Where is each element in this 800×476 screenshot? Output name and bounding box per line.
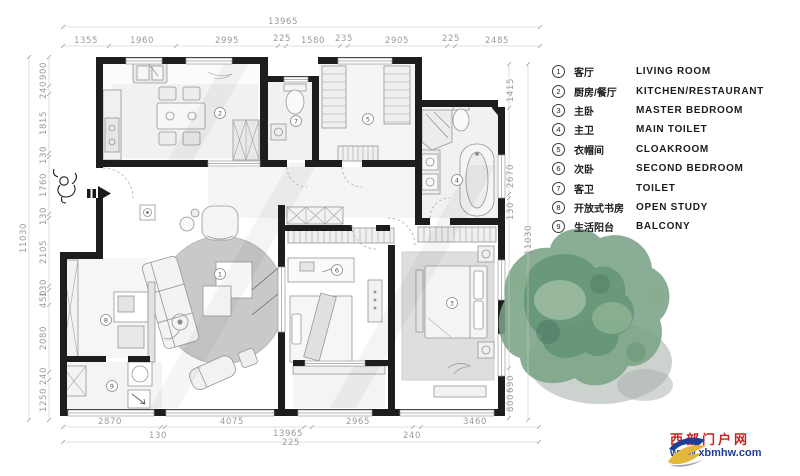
legend-num: 9 [552, 220, 565, 233]
entry-arrow-icon [87, 186, 111, 201]
legend-num: 1 [552, 65, 565, 78]
laundry-sink [128, 390, 150, 408]
legend-num: 6 [552, 162, 565, 175]
svg-text:130: 130 [39, 207, 49, 225]
room-label-main-toilet: 4 [452, 175, 463, 186]
desk-lamp [300, 262, 314, 271]
svg-text:2965: 2965 [346, 417, 370, 427]
dim-right-overall: 11030 [524, 225, 534, 255]
dim-left-overall: 11030 [19, 223, 29, 253]
svg-text:2: 2 [218, 110, 222, 118]
svg-text:240: 240 [39, 367, 49, 385]
svg-text:2105: 2105 [39, 240, 49, 264]
half-wall [148, 282, 155, 362]
svg-text:240: 240 [403, 431, 421, 441]
svg-text:235: 235 [335, 34, 353, 44]
legend-zh: 开放式书房 [574, 200, 636, 215]
svg-text:1250: 1250 [39, 388, 49, 412]
range [105, 118, 119, 152]
legend-row-living: 1客厅LIVING ROOM [552, 62, 797, 81]
legend-row-balcony: 9生活阳台BALCONY [552, 217, 797, 236]
desk [288, 258, 354, 282]
legend-row-guest-toilet: 7客卫TOILET [552, 178, 797, 197]
legend: 1客厅LIVING ROOM 2厨房/餐厅KITCHEN/RESTAURANT … [552, 62, 797, 237]
svg-text:4: 4 [455, 177, 459, 185]
svg-text:225: 225 [442, 34, 460, 44]
legend-zh: 客厅 [574, 64, 636, 79]
corridor-closet [287, 207, 343, 224]
dimensions-bottom: 2870 4075 2965 3460 130 13965 225 240 [98, 417, 487, 448]
watermark-logo-icon [666, 432, 708, 468]
legend-en: CLOAKROOM [636, 144, 709, 155]
dimensions-left: 900 240 1815 130 1760 130 2105 130 450 2… [19, 62, 49, 412]
svg-text:1960: 1960 [130, 36, 154, 46]
svg-text:900: 900 [39, 62, 49, 80]
pillow [292, 314, 301, 344]
svg-text:1580: 1580 [301, 36, 325, 46]
dining-chair [159, 87, 176, 100]
svg-text:3460: 3460 [463, 417, 487, 427]
tall-cabinet [368, 280, 382, 322]
svg-text:225: 225 [273, 34, 291, 44]
wardrobe-left [322, 66, 346, 128]
svg-text:2670: 2670 [506, 164, 516, 188]
entry-person-icon [54, 169, 77, 203]
svg-text:8: 8 [104, 317, 108, 325]
legend-row-main-toilet: 4主卫MAIN TOILET [552, 120, 797, 139]
double-vanity [420, 150, 440, 194]
legend-en: OPEN STUDY [636, 202, 708, 213]
legend-row-cloakroom: 5衣帽间CLOAKROOM [552, 140, 797, 159]
room-label-guest-toilet: 7 [291, 116, 302, 127]
study-cabinet [118, 326, 144, 348]
small-sink [271, 124, 286, 140]
svg-text:2905: 2905 [385, 36, 409, 46]
room-label-balcony: 9 [107, 381, 118, 392]
legend-en: MAIN TOILET [636, 124, 707, 135]
svg-text:9: 9 [110, 383, 114, 391]
room-label-cloakroom: 5 [363, 114, 374, 125]
shower [422, 110, 452, 150]
study-chair [118, 296, 134, 312]
svg-text:5: 5 [366, 116, 370, 124]
legend-row-master-bedroom: 3主卧MASTER BEDROOM [552, 101, 797, 120]
dimensions-top: 13965 1355 1960 2995 225 1580 235 2905 2… [74, 17, 509, 46]
dim-top-overall: 13965 [268, 17, 298, 27]
legend-row-kitchen: 2厨房/餐厅KITCHEN/RESTAURANT [552, 81, 797, 100]
svg-text:130: 130 [39, 146, 49, 164]
control-panel-symbol [140, 205, 155, 220]
svg-text:450: 450 [39, 290, 49, 308]
master-bedroom [402, 227, 496, 397]
legend-num: 5 [552, 143, 565, 156]
svg-text:7: 7 [294, 118, 298, 126]
svg-text:1760: 1760 [39, 173, 49, 197]
legend-zh: 生活阳台 [574, 219, 636, 234]
svg-text:1: 1 [218, 271, 222, 279]
svg-text:1355: 1355 [74, 36, 98, 46]
toilet-bowl [453, 109, 469, 131]
legend-en: MASTER BEDROOM [636, 105, 743, 116]
svg-text:130: 130 [149, 431, 167, 441]
legend-en: KITCHEN/RESTAURANT [636, 86, 764, 97]
room-label-second-bedroom: 6 [332, 265, 343, 276]
nightstand [478, 246, 494, 262]
armchair [202, 206, 238, 240]
legend-zh: 衣帽间 [574, 142, 636, 157]
legend-num: 8 [552, 201, 565, 214]
legend-row-study: 8开放式书房OPEN STUDY [552, 198, 797, 217]
wardrobe-right [384, 66, 410, 124]
legend-zh: 客卫 [574, 181, 636, 196]
room-label-living: 1 [215, 269, 226, 280]
legend-zh: 主卫 [574, 122, 636, 137]
legend-num: 2 [552, 85, 565, 98]
legend-en: LIVING ROOM [636, 66, 711, 77]
svg-text:2870: 2870 [98, 417, 122, 427]
toilet-bowl [286, 90, 304, 114]
side-table [180, 217, 194, 231]
svg-text:2485: 2485 [485, 36, 509, 46]
svg-text:800: 800 [506, 394, 516, 412]
svg-text:1415: 1415 [506, 78, 516, 102]
pillow [474, 301, 483, 329]
legend-en: BALCONY [636, 221, 690, 232]
svg-text:225: 225 [282, 438, 300, 448]
legend-zh: 厨房/餐厅 [574, 84, 636, 99]
legend-zh: 主卧 [574, 103, 636, 118]
legend-row-second-bedroom: 6次卧SECOND BEDROOM [552, 159, 797, 178]
legend-num: 4 [552, 123, 565, 136]
washing-machine [128, 362, 152, 386]
legend-num: 3 [552, 104, 565, 117]
svg-text:1815: 1815 [39, 111, 49, 135]
room-label-master-bedroom: 3 [447, 298, 458, 309]
legend-num: 7 [552, 182, 565, 195]
kitchen-sink [133, 63, 167, 83]
watermark: 西部门户网 www.xbmhw.com [666, 432, 761, 460]
svg-text:6: 6 [335, 267, 339, 275]
svg-text:2995: 2995 [215, 36, 239, 46]
svg-text:2080: 2080 [39, 326, 49, 350]
svg-text:4075: 4075 [220, 417, 244, 427]
pillow [474, 271, 483, 299]
legend-zh: 次卧 [574, 161, 636, 176]
svg-text:3: 3 [450, 300, 454, 308]
room-label-study: 8 [101, 315, 112, 326]
svg-text:130: 130 [506, 202, 516, 220]
nightstand [478, 342, 494, 358]
dining-chair [159, 132, 176, 145]
svg-text:690: 690 [506, 375, 516, 393]
svg-text:240: 240 [39, 81, 49, 99]
room-label-kitchen: 2 [215, 108, 226, 119]
legend-en: SECOND BEDROOM [636, 163, 744, 174]
tv-bench [434, 386, 486, 397]
dining-chair [183, 87, 200, 100]
legend-en: TOILET [636, 183, 676, 194]
floorplan-page: 1 2 3 4 5 6 7 8 9 13965 1355 [0, 0, 800, 476]
